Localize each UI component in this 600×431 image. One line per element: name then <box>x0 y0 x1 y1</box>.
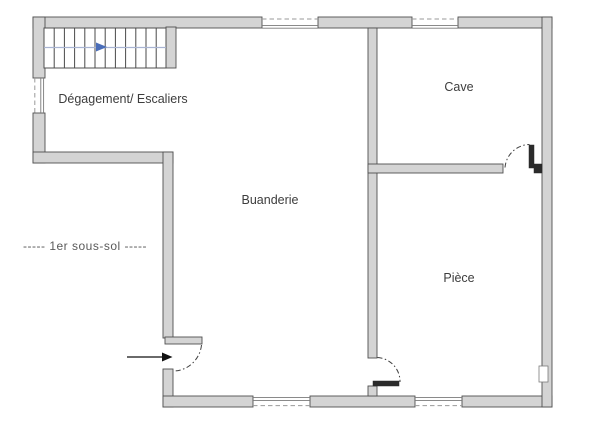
staircase-side-wall <box>166 27 176 68</box>
divider-wall-vertical-stub <box>368 386 377 396</box>
room-label-degagement: Dégagement/ Escaliers <box>58 92 187 106</box>
windows <box>35 19 462 406</box>
divider-wall-vertical <box>368 28 377 358</box>
exterior-wall-bottom-left <box>163 396 253 407</box>
level-label: ----- 1er sous-sol ----- <box>23 239 147 253</box>
window-bottom-1 <box>253 398 310 406</box>
exterior-wall-top-right <box>458 17 552 28</box>
floor-plan: Dégagement/ Escaliers Cave Buanderie Piè… <box>0 0 600 431</box>
window-top-2 <box>412 19 458 28</box>
window-left <box>35 78 44 113</box>
exterior-walls <box>33 17 552 407</box>
room-label-cave: Cave <box>444 80 473 94</box>
entry-door <box>165 337 202 371</box>
entry-door-swing-arc <box>175 345 202 371</box>
piece-door <box>373 358 400 387</box>
divider-wall-horizontal-stub <box>534 164 542 173</box>
piece-door-swing-arc <box>378 358 401 383</box>
room-label-piece: Pièce <box>443 271 474 285</box>
room-label-buanderie: Buanderie <box>242 193 299 207</box>
window-bottom-2 <box>415 398 462 406</box>
interior-walls <box>166 27 542 396</box>
entrance-arrow-icon <box>127 353 173 362</box>
staircase <box>44 28 166 68</box>
exterior-wall-left-upper <box>33 17 45 78</box>
cave-door-swing-arc <box>505 145 530 168</box>
window-top-1 <box>262 19 318 28</box>
piece-door-leaf <box>373 381 399 386</box>
exterior-wall-bottom-right <box>462 396 552 407</box>
exterior-wall-bottom-middle <box>310 396 415 407</box>
divider-wall-horizontal <box>368 164 503 173</box>
exterior-wall-top-middle <box>318 17 412 28</box>
buanderie-west-wall-upper <box>163 152 173 338</box>
entrance-arrow-head <box>162 353 173 362</box>
cave-door <box>505 145 534 169</box>
entry-door-leaf <box>165 337 202 344</box>
exterior-wall-top-left <box>33 17 262 28</box>
exterior-wall-right <box>542 17 552 407</box>
cave-door-leaf <box>529 145 534 168</box>
doors <box>165 145 534 387</box>
right-wall-opening-notch <box>539 366 548 382</box>
labels: Dégagement/ Escaliers Cave Buanderie Piè… <box>23 80 475 285</box>
degagement-south-wall <box>33 152 173 163</box>
